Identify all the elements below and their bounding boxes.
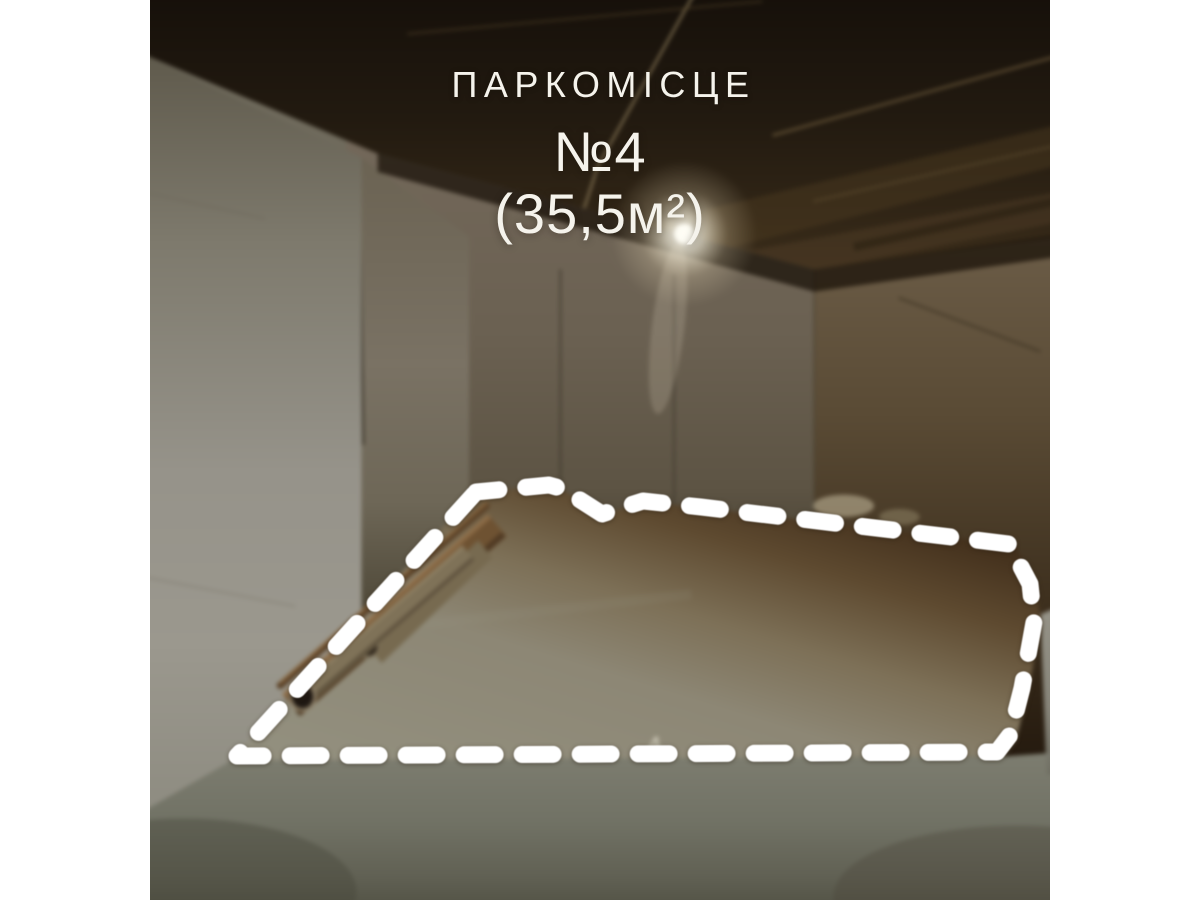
listing-image: 4 ПАРКОМІСЦЕ №4 (35,5м²) [0, 0, 1200, 900]
garage-photo: 4 ПАРКОМІСЦЕ №4 (35,5м²) [150, 0, 1050, 900]
parking-space-outline [150, 0, 1050, 900]
outline-path [237, 485, 1034, 756]
